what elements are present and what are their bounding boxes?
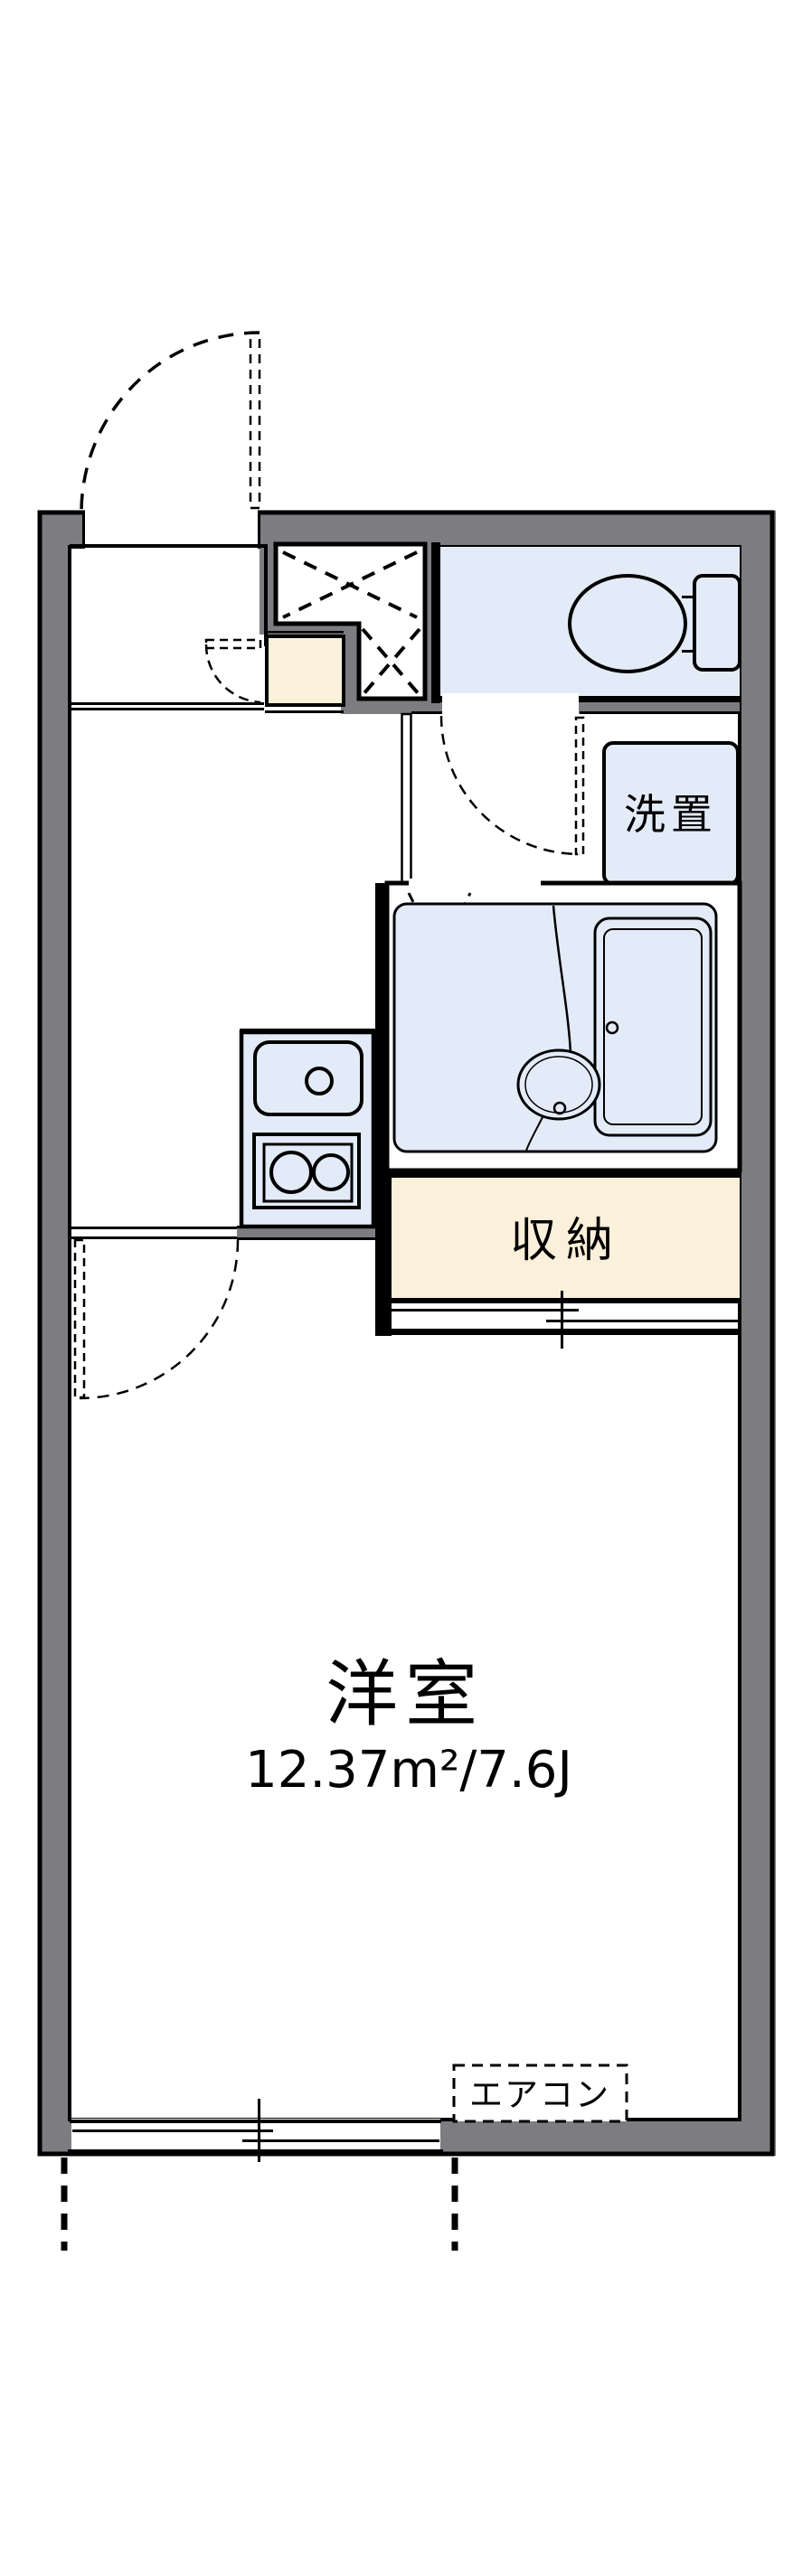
bathroom (387, 879, 740, 1170)
shoe-cabinet-top-line (265, 631, 344, 634)
hall-door-leaf (206, 640, 260, 648)
shoe-cabinet-box (267, 636, 344, 705)
entry-jamb-left (82, 511, 85, 549)
entry-door-swing-arc (81, 333, 260, 512)
floor-plan-page: 洗置 収納 (0, 0, 812, 2576)
main-room: 洋室 12.37m²/7.6J (245, 1652, 572, 1800)
wash-basin-outer (518, 1050, 600, 1119)
entry-jamb-right (258, 511, 260, 549)
shoe-cabinet-bottom-line (265, 710, 344, 713)
entry-door-leaf (250, 333, 260, 508)
window-opening (71, 2119, 440, 2153)
washroom-wall-edge-right (580, 711, 740, 714)
window-pane-right (242, 2139, 439, 2142)
entry-opening (85, 507, 258, 550)
storage-label: 収納 (510, 1214, 622, 1268)
toilet-room (411, 542, 740, 716)
corridor-partition-wall (402, 714, 411, 885)
main-room-door-leaf (75, 1240, 84, 1397)
storage-slide-door-tick (561, 1291, 563, 1349)
bathroom-doorway (409, 879, 541, 888)
kitchen (240, 1029, 377, 1227)
shoe-cabinet (265, 631, 344, 713)
main-room-label: 洋室 (326, 1652, 485, 1736)
genkan-step-line-1 (70, 702, 264, 705)
genkan-step-line-2 (70, 708, 264, 710)
toilet-hinge-bottom (682, 650, 696, 653)
toilet-hinge-top (682, 596, 696, 598)
main-room-door-swing-arc (80, 1240, 238, 1398)
doorway-header-line-1 (70, 1227, 237, 1229)
washroom-door-swing-arc (441, 716, 580, 854)
window-pane-left (72, 2129, 273, 2132)
window-top-line (70, 2120, 441, 2123)
washroom-door-leaf (576, 718, 583, 854)
washroom: 洗置 (402, 714, 739, 885)
entry-threshold-line (70, 544, 268, 548)
aircon-label: エアコン (469, 2075, 610, 2114)
toilet-left-wall (431, 542, 440, 703)
main-room-entry (70, 1227, 238, 1398)
doorway-header-line-2 (70, 1236, 237, 1239)
floor-plan-drawing: 洗置 収納 (0, 0, 812, 2576)
washroom-doorway (442, 693, 579, 716)
storage-slide-door-right (546, 1320, 740, 1322)
kitchen-bottom-wall-bottom-line (237, 1237, 377, 1240)
aircon: エアコン (454, 2065, 627, 2121)
storage: 収納 (387, 1169, 740, 1349)
washroom-wall-edge-left (411, 711, 442, 714)
bottom-window (64, 2099, 455, 2251)
storage-top-wall (387, 1169, 740, 1178)
kitchen-unit (241, 1032, 373, 1227)
entrance (70, 333, 268, 710)
window-bottom-line (68, 2149, 443, 2153)
laundry-label: 洗置 (624, 790, 718, 839)
hall-door-swing-arc (206, 644, 260, 702)
main-room-size-label: 12.37m²/7.6J (245, 1741, 572, 1800)
storage-slide-door-left (392, 1309, 579, 1312)
main-room-top-wall (387, 1329, 740, 1335)
window-center-tick (258, 2099, 260, 2162)
